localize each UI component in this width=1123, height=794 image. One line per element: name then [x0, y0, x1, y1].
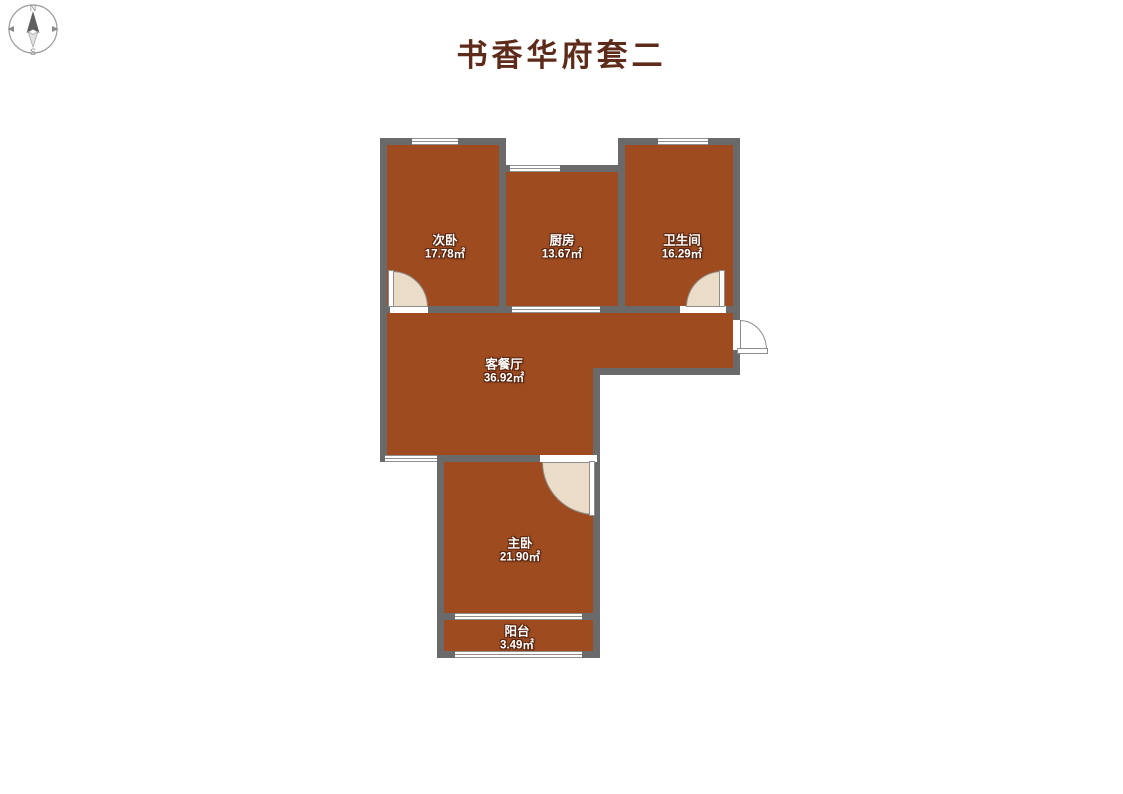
window-master-balcony	[455, 613, 582, 620]
room-area: 16.29㎡	[662, 249, 702, 263]
room-name: 卫生间	[663, 234, 701, 248]
wall-entry-arm-bottom	[593, 368, 740, 375]
room-name: 主卧	[507, 537, 532, 551]
window-bathroom	[658, 138, 708, 145]
kitchen-sliding-opening	[512, 306, 600, 313]
door-leaf-bathroom	[719, 270, 725, 307]
door-leaf-entrance	[737, 348, 768, 354]
door-leaf-secondary-bedroom	[388, 270, 394, 307]
opening-bathroom-door	[680, 306, 726, 313]
wall-bedroom-kitchen-divider	[499, 138, 506, 313]
window-living-bottom	[385, 455, 437, 462]
window-secondary-bedroom	[412, 138, 458, 145]
door-swing-entrance	[740, 320, 767, 350]
room-area: 21.90㎡	[500, 552, 540, 566]
door-leaf-master-bedroom	[589, 461, 595, 516]
wall-left-outer	[380, 138, 387, 462]
wall-master-left	[437, 455, 444, 658]
room-name: 厨房	[549, 234, 574, 248]
room-area: 36.92㎡	[484, 373, 524, 387]
label-master-bedroom: 主卧 21.90㎡	[500, 537, 540, 566]
label-secondary-bedroom: 次卧 17.78㎡	[425, 234, 465, 263]
room-area: 13.67㎡	[542, 249, 582, 263]
label-balcony: 阳台 3.49㎡	[500, 625, 534, 654]
wall-kitchen-bathroom-divider	[618, 138, 625, 313]
label-kitchen: 厨房 13.67㎡	[542, 234, 582, 263]
room-name: 客餐厅	[485, 358, 523, 372]
window-kitchen	[510, 165, 560, 172]
room-name: 次卧	[432, 234, 457, 248]
room-area: 3.49㎡	[500, 640, 534, 654]
opening-entrance-door	[733, 320, 740, 350]
page-title: 书香华府套二	[0, 30, 1123, 75]
label-bathroom: 卫生间 16.29㎡	[662, 234, 702, 263]
room-name: 阳台	[504, 625, 529, 639]
room-area: 17.78㎡	[425, 249, 465, 263]
label-living-dining: 客餐厅 36.92㎡	[484, 358, 524, 387]
opening-secondary-bedroom-door	[390, 306, 428, 313]
